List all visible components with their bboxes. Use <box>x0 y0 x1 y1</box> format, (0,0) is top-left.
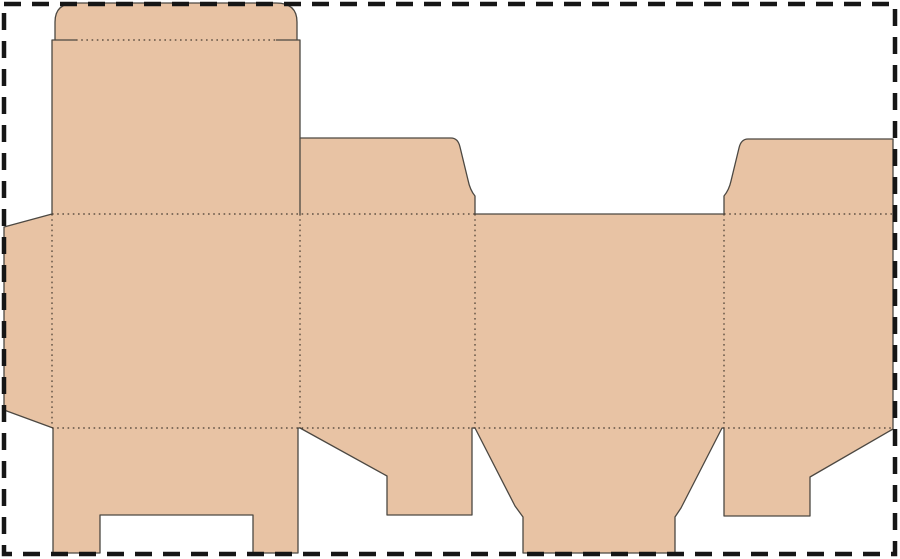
dieline-outline <box>4 3 893 553</box>
dieline-sheet <box>0 0 900 559</box>
dieline-canvas <box>0 0 900 559</box>
